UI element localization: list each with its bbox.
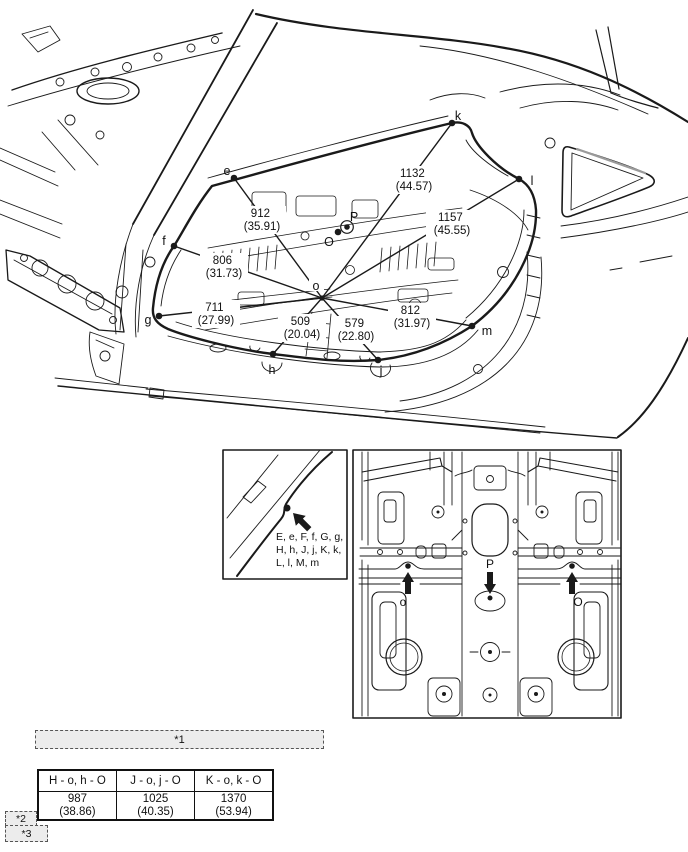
label-o-hub: o bbox=[313, 279, 320, 293]
point-o-underbody-dot bbox=[405, 563, 411, 569]
label-l: l bbox=[531, 174, 534, 188]
underbody-label-P: P bbox=[486, 557, 494, 571]
note-line-2: H, h, J, j, K, k, bbox=[276, 544, 341, 556]
label-e: e bbox=[224, 164, 231, 178]
measurement-l-o: 1157 (45.55) bbox=[434, 212, 471, 237]
footnote-2-box: *2 bbox=[5, 811, 37, 826]
table-value-j: 1025 (40.35) bbox=[116, 792, 194, 821]
point-f-dot bbox=[171, 243, 178, 250]
line-o-g bbox=[159, 298, 322, 316]
note-line-1: E, e, F, f, G, g, bbox=[276, 531, 343, 543]
point-l-dot bbox=[516, 176, 523, 183]
footnote-3-box: *3 bbox=[5, 825, 48, 842]
table-value-row: 987 (38.86) 1025 (40.35) 1370 (53.94) bbox=[38, 792, 273, 821]
note-line-3: L, l, M, m bbox=[276, 557, 319, 569]
point-e-dot bbox=[231, 175, 238, 182]
measurement-k-o: 1132 (44.57) bbox=[396, 168, 433, 193]
value-mm: 1370 bbox=[195, 793, 272, 806]
label-P: P bbox=[350, 210, 358, 224]
footnote-1-bar: *1 bbox=[35, 730, 324, 749]
value-mm: 1025 bbox=[117, 793, 194, 806]
point-m-dot bbox=[469, 323, 476, 330]
value-inch: (53.94) bbox=[195, 806, 272, 819]
table-value-k: 1370 (53.94) bbox=[195, 792, 273, 821]
table-header-row: H - o, h - O J - o, j - O K - o, k - O bbox=[38, 770, 273, 792]
weld-point-dot bbox=[284, 505, 291, 512]
underbody-label-O: O bbox=[573, 595, 582, 609]
footnote-2-label: *2 bbox=[16, 813, 26, 825]
detail-inset: E, e, F, f, G, g, H, h, J, j, K, k, L, l… bbox=[223, 450, 347, 579]
body-dimensions-figure: 912 (35.91) 806 (31.73) 711 (27.99) 509 … bbox=[0, 0, 688, 728]
value-mm: 987 bbox=[39, 793, 116, 806]
point-g-dot bbox=[156, 313, 163, 320]
underbody-inset: o P O bbox=[353, 450, 621, 718]
table-value-h: 987 (38.86) bbox=[38, 792, 116, 821]
point-j-dot bbox=[375, 357, 382, 364]
page: 912 (35.91) 806 (31.73) 711 (27.99) 509 … bbox=[0, 0, 688, 852]
table-header-j: J - o, j - O bbox=[116, 770, 194, 792]
label-g: g bbox=[145, 313, 152, 327]
point-P-dot bbox=[344, 224, 350, 230]
footnote-3-label: *3 bbox=[22, 828, 32, 840]
point-o-hub-dot bbox=[319, 295, 324, 300]
rocker-panel bbox=[55, 378, 617, 438]
label-k: k bbox=[455, 109, 462, 123]
label-m: m bbox=[482, 324, 492, 338]
value-inch: (38.86) bbox=[39, 806, 116, 819]
point-h-dot bbox=[270, 351, 277, 358]
point-O-underbody-dot bbox=[569, 563, 575, 569]
point-O-dot bbox=[335, 229, 342, 236]
label-f: f bbox=[162, 234, 166, 248]
label-h: h bbox=[269, 363, 276, 377]
table-header-h: H - o, h - O bbox=[38, 770, 116, 792]
label-O: O bbox=[324, 235, 334, 249]
value-inch: (40.35) bbox=[117, 806, 194, 819]
table-header-k: K - o, k - O bbox=[195, 770, 273, 792]
underbody-label-o: o bbox=[400, 595, 407, 609]
point-P-underbody-dot bbox=[488, 596, 493, 601]
label-j: j bbox=[379, 364, 383, 378]
dimensions-table: H - o, h - O J - o, j - O K - o, k - O 9… bbox=[37, 769, 274, 821]
footnote-1-label: *1 bbox=[174, 734, 184, 746]
